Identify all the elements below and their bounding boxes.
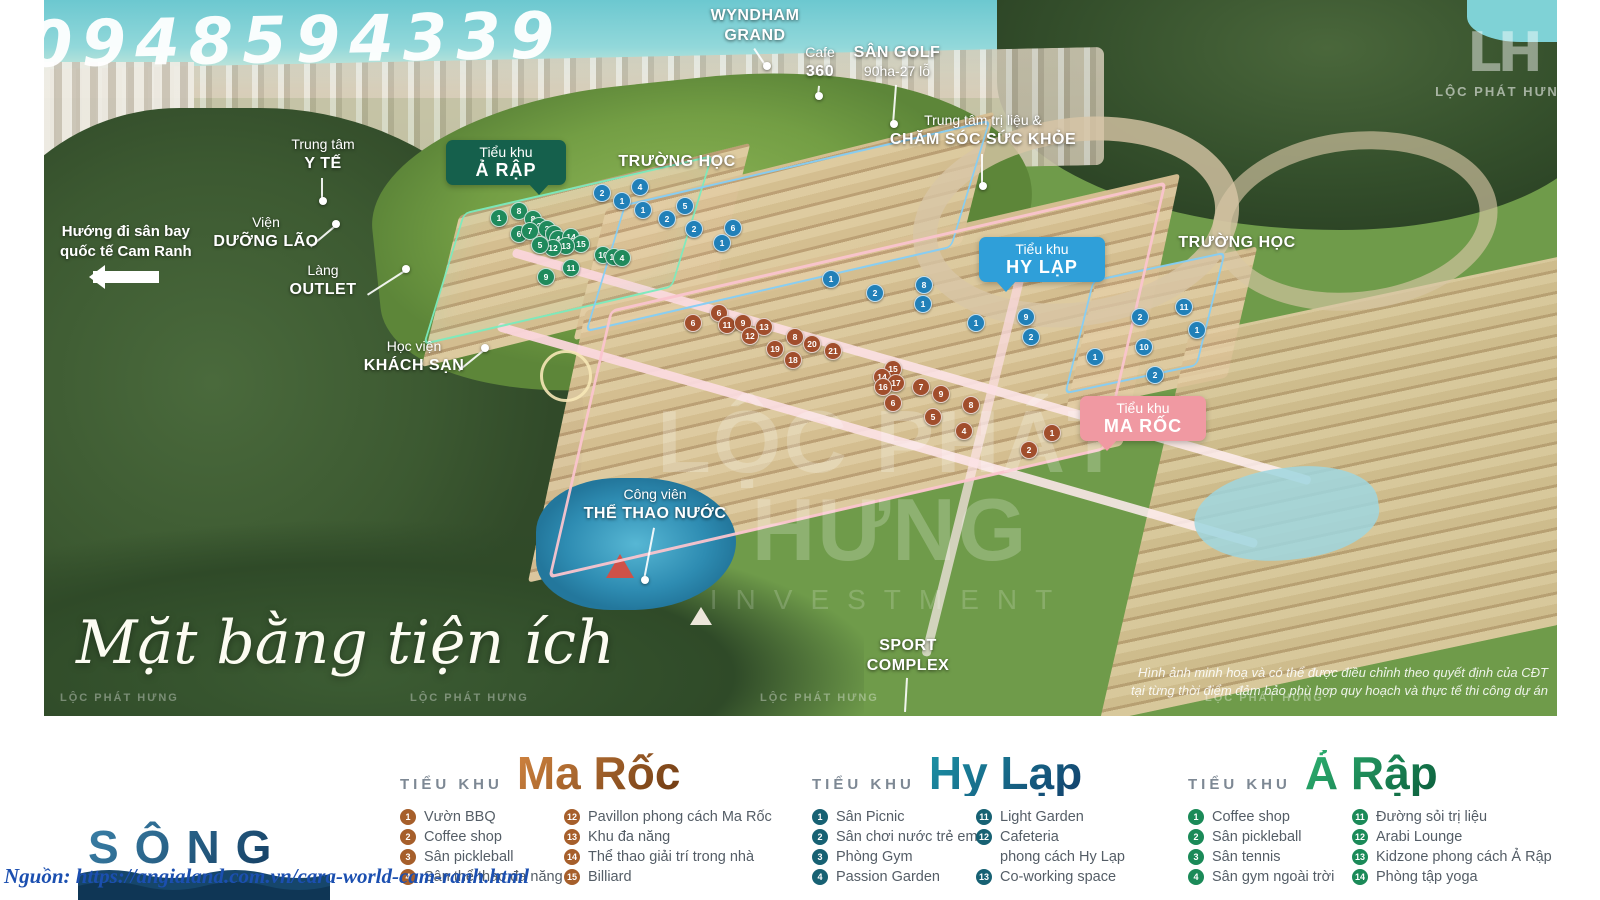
amenity-marker-brown-8: 8: [786, 328, 804, 346]
legend-item-label: Arabi Lounge: [1376, 829, 1462, 845]
legend-section-hy-lap: TIỂU KHUHy Lạp1Sân Picnic2Sân chơi nước …: [812, 750, 1186, 885]
map-label-vien-duong-lao: ViệnDƯỠNG LÃO: [213, 214, 318, 252]
legend-item-number: 1: [812, 809, 828, 825]
phone-number-watermark: 0948594339: [27, 0, 564, 83]
amenity-marker-brown-1: 1: [1043, 424, 1061, 442]
legend-kicker: TIỂU KHU: [1188, 776, 1291, 793]
legend-item-label: Kidzone phong cách Ả Rập: [1376, 849, 1552, 865]
amenity-marker-brown-7: 7: [912, 378, 930, 396]
leader-dot-hoc-vien-khach-san: [481, 344, 489, 352]
airport-direction-note: Hướng đi sân bay quốc tế Cam Ranh: [60, 222, 192, 283]
amenity-marker-brown-12: 12: [741, 327, 759, 345]
legend-section-a-rap: TIỂU KHUẢ Rập1Coffee shop2Sân pickleball…: [1188, 750, 1562, 885]
map-label-cafe-360: Cafe360: [805, 44, 835, 82]
legend-item: 13Kidzone phong cách Ả Rập: [1352, 849, 1562, 865]
legend-item: phong cách Hy Lạp: [976, 849, 1186, 865]
legend-item: 2Sân pickleball: [1188, 829, 1338, 845]
amenity-marker-brown-9: 9: [932, 385, 950, 403]
legend-item: 2Sân chơi nước trẻ em: [812, 829, 962, 845]
amenity-marker-blue-1: 1: [713, 234, 731, 252]
amenity-marker-green-11: 11: [562, 259, 580, 277]
legend-item: 13Khu đa năng: [564, 829, 774, 845]
legend-item-label: Đường sỏi trị liệu: [1376, 809, 1487, 825]
amenity-marker-blue-1: 1: [613, 192, 631, 210]
amenity-marker-blue-1: 1: [1188, 321, 1206, 339]
map-label-line: SÂN GOLF: [854, 43, 941, 63]
map-label-line: Học viện: [364, 338, 465, 356]
leader-dot-vien-duong-lao: [332, 220, 340, 228]
zone-badge-kicker: Tiểu khu: [456, 144, 556, 160]
legend-item-label: Sân tennis: [1212, 849, 1281, 865]
legend-item: 11Đường sỏi trị liệu: [1352, 809, 1562, 825]
map-label-line: TRƯỜNG HỌC: [618, 152, 735, 172]
map-label-hoc-vien-khach-san: Học việnKHÁCH SẠN: [364, 338, 465, 376]
legend-title-ma-roc: TIỂU KHUMa Rốc: [400, 750, 774, 796]
map-label-lang-outlet: LàngOUTLET: [290, 262, 357, 300]
legend-item-label: Khu đa năng: [588, 829, 670, 845]
zone-badge-name: Ả RẬP: [456, 160, 556, 181]
amenity-marker-green-9: 9: [537, 268, 555, 286]
amenity-marker-blue-1: 1: [822, 270, 840, 288]
legend-item-label: Thể thao giải trí trong nhà: [588, 849, 754, 865]
legend-item-number: 11: [976, 809, 992, 825]
amenity-marker-brown-6: 6: [884, 394, 902, 412]
map-label-line: SPORT: [867, 636, 950, 656]
legend-zone-name: Hy Lạp: [929, 750, 1082, 796]
legend-item-number: 11: [1352, 809, 1368, 825]
legend-item-number: 2: [400, 829, 416, 845]
legend-item: 3Sân pickleball: [400, 849, 550, 865]
map-label-line: KHÁCH SẠN: [364, 356, 465, 376]
brand-watermark-sub: INVESTMENT: [560, 584, 1220, 616]
amenity-marker-brown-2: 2: [1020, 441, 1038, 459]
legend-item-number: 13: [1352, 849, 1368, 865]
legend-item: 3Sân tennis: [1188, 849, 1338, 865]
amenity-marker-green-1: 1: [490, 209, 508, 227]
brand-watermark-small-0: LỘC PHÁT HƯNG: [60, 692, 179, 704]
legend-columns-hy-lap: 1Sân Picnic2Sân chơi nước trẻ em3Phòng G…: [812, 809, 1186, 885]
map-label-trung-tam-y-te: Trung tâmY TẾ: [291, 136, 354, 174]
legend-item: 1Coffee shop: [1188, 809, 1338, 825]
amenity-marker-brown-16: 16: [874, 378, 892, 396]
legend-item: 12Cafeteria: [976, 829, 1186, 845]
brand-watermark-small-1: LỘC PHÁT HƯNG: [410, 692, 529, 704]
leader-dot-cong-vien-the-thao-nuoc: [641, 576, 649, 584]
legend-item: 3Phòng Gym: [812, 849, 962, 865]
disclaimer-line2: tại từng thời điểm đảm bảo phù hợp quy h…: [1131, 683, 1548, 698]
direction-line1: Hướng đi sân bay: [62, 223, 190, 240]
developer-logo-text: LỘC PHÁT HƯNG: [1428, 84, 1578, 99]
map-label-line: GRAND: [711, 26, 800, 46]
legend-item-label: Coffee shop: [1212, 809, 1290, 825]
legend-item-number: 12: [564, 809, 580, 825]
legend-kicker: TIỂU KHU: [400, 776, 503, 793]
map-label-line: OUTLET: [290, 280, 357, 300]
amenity-marker-blue-11: 11: [1175, 298, 1193, 316]
brand-watermark-text: LỘC PHÁT HƯNG: [657, 392, 1123, 579]
map-label-line: DƯỠNG LÃO: [213, 232, 318, 252]
amenity-marker-brown-5: 5: [924, 408, 942, 426]
legend-item: 4Sân gym ngoài trời: [1188, 869, 1338, 885]
zone-badge-name: MA RỐC: [1090, 416, 1196, 437]
amenity-marker-brown-18: 18: [784, 351, 802, 369]
amenity-marker-brown-4: 4: [955, 422, 973, 440]
legend-item-number: 1: [400, 809, 416, 825]
map-label-line: Trung tâm: [291, 136, 354, 154]
map-label-line: 360: [805, 62, 835, 82]
brand-watermark-small-3: LỘC PHÁT HƯNG: [1205, 692, 1324, 704]
legend-item: 14Phòng tập yoga: [1352, 869, 1562, 885]
map-label-line: Y TẾ: [291, 154, 354, 174]
map-label-line: THỂ THAO NƯỚC: [584, 504, 727, 524]
amenity-marker-green-5: 5: [531, 236, 549, 254]
amenity-marker-blue-9: 9: [1017, 308, 1035, 326]
map-label-line: TRƯỜNG HỌC: [1178, 233, 1295, 253]
leader-dot-cafe-360: [815, 92, 823, 100]
legend-item: 11Light Garden: [976, 809, 1186, 825]
legend-item-number: 15: [564, 869, 580, 885]
legend-item-number: 12: [1352, 829, 1368, 845]
map-label-truong-hoc-1: TRƯỜNG HỌC: [618, 152, 735, 172]
zone-badge-kicker: Tiểu khu: [989, 241, 1095, 257]
amenity-marker-blue-2: 2: [658, 210, 676, 228]
legend-item-number: 14: [1352, 869, 1368, 885]
legend-item-number: 3: [400, 849, 416, 865]
amenity-marker-brown-19: 19: [766, 340, 784, 358]
map-label-line: Làng: [290, 262, 357, 280]
zone-badge-name: HY LẠP: [989, 257, 1095, 278]
disclaimer-line1: Hình ảnh minh hoạ và có thể được điều ch…: [1138, 665, 1548, 680]
zone-badge-tail: [995, 280, 1017, 292]
map-label-cong-vien-the-thao-nuoc: Công viênTHỂ THAO NƯỚC: [584, 486, 727, 524]
leader-dot-cham-soc-suc-khoe: [979, 182, 987, 190]
zone-badge-kicker: Tiểu khu: [1090, 400, 1196, 416]
legend-item: 1Sân Picnic: [812, 809, 962, 825]
map-label-line: Cafe: [805, 44, 835, 62]
legend-item-label: Billiard: [588, 869, 632, 885]
legend-col2-ma-roc: 12Pavillon phong cách Ma Rốc13Khu đa năn…: [564, 809, 774, 885]
legend-item-label: Phòng Gym: [836, 849, 913, 865]
map-label-line: CHĂM SÓC SỨC KHỎE: [890, 130, 1076, 150]
amenity-marker-brown-6: 6: [684, 314, 702, 332]
legend-col1-hy-lap: 1Sân Picnic2Sân chơi nước trẻ em3Phòng G…: [812, 809, 962, 885]
left-arrow-icon: [93, 271, 159, 283]
legend-item-number: 4: [1188, 869, 1204, 885]
map-script-title: Mặt bằng tiện ích: [76, 608, 615, 678]
legend-col2-hy-lap: 11Light Garden12Cafeteriaphong cách Hy L…: [976, 809, 1186, 885]
legend-item-label: Sân pickleball: [424, 849, 513, 865]
legend-item-label: Sân Picnic: [836, 809, 905, 825]
map-label-sport-complex: SPORTCOMPLEX: [867, 636, 950, 676]
amenity-marker-blue-2: 2: [866, 284, 884, 302]
amenity-marker-blue-2: 2: [593, 184, 611, 202]
legend-item-label: Light Garden: [1000, 809, 1084, 825]
zone-badge-hy-lap: Tiểu khuHY LẠP: [979, 237, 1105, 282]
legend-item-label: Vườn BBQ: [424, 809, 496, 825]
legend-item-number: 3: [1188, 849, 1204, 865]
developer-logo: LH LỘC PHÁT HƯNG: [1428, 26, 1578, 99]
legend-item: 13Co-working space: [976, 869, 1186, 885]
legend-col1-a-rap: 1Coffee shop2Sân pickleball3Sân tennis4S…: [1188, 809, 1338, 885]
leader-dot-trung-tam-y-te: [319, 197, 327, 205]
amenity-marker-blue-1: 1: [634, 201, 652, 219]
source-link[interactable]: Nguồn: https://angialand.com.vn/cara-wor…: [4, 864, 529, 889]
amenity-marker-brown-8: 8: [962, 396, 980, 414]
leader-dot-wyndham-grand: [763, 62, 771, 70]
developer-logo-monogram-icon: LH: [1428, 26, 1578, 80]
map-label-san-golf: SÂN GOLF90ha-27 lỗ: [854, 43, 941, 81]
map-label-line: Trung tâm trị liệu &: [890, 112, 1076, 130]
zone-badge-tail: [1096, 439, 1118, 451]
map-label-line: 90ha-27 lỗ: [854, 63, 941, 81]
map-label-truong-hoc-2: TRƯỜNG HỌC: [1178, 233, 1295, 253]
legend-item-number: 13: [564, 829, 580, 845]
amenity-marker-blue-4: 4: [631, 178, 649, 196]
amenity-marker-blue-6: 6: [724, 219, 742, 237]
legend-item-label: Passion Garden: [836, 869, 940, 885]
legend-item-label: phong cách Hy Lạp: [1000, 849, 1125, 865]
legend-item: 15Billiard: [564, 869, 774, 885]
amenity-marker-blue-2: 2: [1131, 308, 1149, 326]
legend-item-number: 12: [976, 829, 992, 845]
amenity-marker-blue-2: 2: [1022, 328, 1040, 346]
ferris-wheel: [540, 350, 592, 402]
legend-item: 4Passion Garden: [812, 869, 962, 885]
legend-item-number: 14: [564, 849, 580, 865]
direction-line2: quốc tế Cam Ranh: [60, 243, 192, 260]
map-label-line: Công viên: [584, 486, 727, 504]
amenity-marker-blue-2: 2: [1146, 366, 1164, 384]
map-label-line: COMPLEX: [867, 656, 950, 676]
legend-title-hy-lap: TIỂU KHUHy Lạp: [812, 750, 1186, 796]
amenity-marker-blue-2: 2: [685, 220, 703, 238]
legend-zone-name: Ma Rốc: [517, 750, 681, 796]
legend-item-label: Pavillon phong cách Ma Rốc: [588, 809, 772, 825]
brand-watermark-small-2: LỘC PHÁT HƯNG: [760, 692, 879, 704]
legend-item: 12Arabi Lounge: [1352, 829, 1562, 845]
legend-columns-a-rap: 1Coffee shop2Sân pickleball3Sân tennis4S…: [1188, 809, 1562, 885]
legend-kicker: TIỂU KHU: [812, 776, 915, 793]
legend-item-number: 1: [1188, 809, 1204, 825]
masterplan-page: 1882326741415131251011411924112526112811…: [0, 0, 1600, 900]
amenity-marker-brown-21: 21: [824, 342, 842, 360]
legend-item-label: Coffee shop: [424, 829, 502, 845]
legend-item-number: 13: [976, 869, 992, 885]
legend-item-label: Co-working space: [1000, 869, 1116, 885]
amenity-marker-brown-20: 20: [803, 335, 821, 353]
amenity-marker-green-4: 4: [613, 249, 631, 267]
legend-item-label: Phòng tập yoga: [1376, 869, 1478, 885]
legend-item: 14Thể thao giải trí trong nhà: [564, 849, 774, 865]
legend-col2-a-rap: 11Đường sỏi trị liệu12Arabi Lounge13Kidz…: [1352, 809, 1562, 885]
legend-title-a-rap: TIỂU KHUẢ Rập: [1188, 750, 1562, 796]
legend-zone-name: Ả Rập: [1305, 750, 1438, 796]
legend-item: 12Pavillon phong cách Ma Rốc: [564, 809, 774, 825]
legend-item-number: 4: [812, 869, 828, 885]
legend-item-label: Cafeteria: [1000, 829, 1059, 845]
legend-item-number: 3: [812, 849, 828, 865]
amenity-marker-blue-10: 10: [1135, 338, 1153, 356]
amenity-marker-blue-8: 8: [915, 276, 933, 294]
legend-item-label: Sân pickleball: [1212, 829, 1301, 845]
map-label-cham-soc-suc-khoe: Trung tâm trị liệu &CHĂM SÓC SỨC KHỎE: [890, 112, 1076, 150]
legend-item-label: Sân gym ngoài trời: [1212, 869, 1334, 885]
zone-badge-tail: [528, 183, 550, 195]
legend-item-number: 2: [812, 829, 828, 845]
leader-dot-lang-outlet: [402, 265, 410, 273]
map-label-wyndham-grand: WYNDHAMGRAND: [711, 6, 800, 46]
zone-badge-a-rap: Tiểu khuẢ RẬP: [446, 140, 566, 185]
legend-item-label: Sân chơi nước trẻ em: [836, 829, 978, 845]
amenity-marker-blue-1: 1: [967, 314, 985, 332]
zone-badge-ma-roc: Tiểu khuMA RỐC: [1080, 396, 1206, 441]
amenity-marker-blue-1: 1: [914, 295, 932, 313]
map-disclaimer: Hình ảnh minh hoạ và có thể được điều ch…: [1131, 664, 1548, 700]
map-label-line: Viện: [213, 214, 318, 232]
map-label-line: WYNDHAM: [711, 6, 800, 26]
legend-item: 1Vườn BBQ: [400, 809, 550, 825]
amenity-marker-blue-5: 5: [676, 197, 694, 215]
legend-item: 2Coffee shop: [400, 829, 550, 845]
amenity-marker-blue-1: 1: [1086, 348, 1104, 366]
legend-item-number: 2: [1188, 829, 1204, 845]
